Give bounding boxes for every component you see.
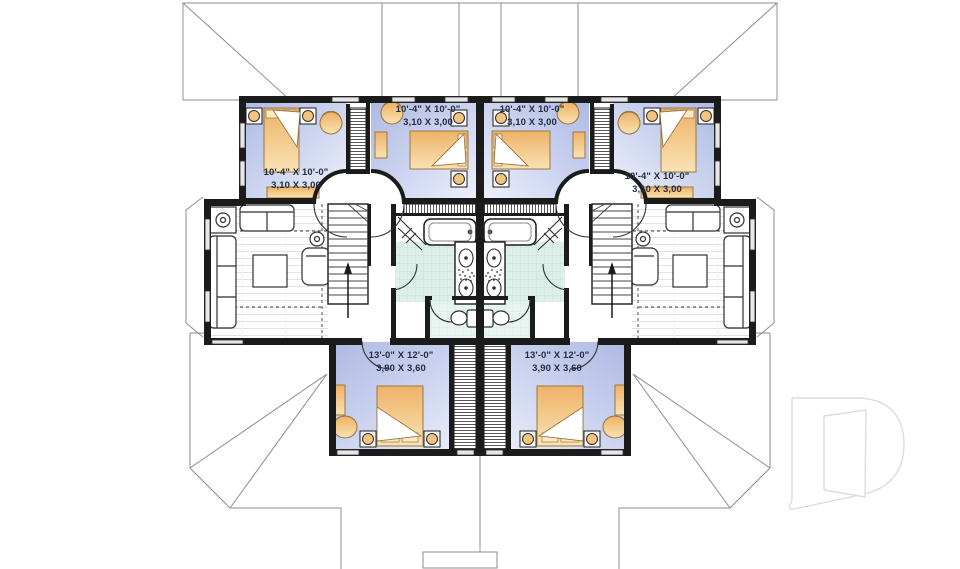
center-roof-details [423,456,497,568]
lamp [249,111,260,122]
tub-faucet [468,230,473,235]
window [212,340,243,344]
dimension-imperial: 10'-4" X 10'-0" [241,166,351,179]
window [337,450,359,455]
coffee-table [253,255,287,287]
lamp [427,434,438,445]
room-label-lower-left: 13'-0" X 12'-0" 3,90 X 3,60 [346,349,456,375]
window [392,97,415,102]
toilet-tank [467,310,477,327]
linen-closet [404,204,476,214]
duplex-right-unit [480,3,777,569]
room-label-upper-right-outer: 10'-4" X 10'-0" 3,10 X 3,00 [602,170,712,196]
dimension-metric: 3,10 X 3,00 [602,183,712,196]
dimension-metric: 3,90 X 3,60 [502,362,612,375]
room-label-lower-right: 13'-0" X 12'-0" 3,90 X 3,60 [502,349,612,375]
window [205,219,210,250]
lamp [454,174,465,185]
round-chair [320,112,342,134]
toilet-bowl [451,311,467,325]
lamp [303,111,314,122]
room-label-upper-left-inner: 10'-4" X 10'-0" 3,10 X 3,00 [373,103,483,129]
dimension-metric: 3,10 X 3,00 [477,116,587,129]
dresser [375,132,387,158]
room-label-upper-right-inner: 10'-4" X 10'-0" 3,10 X 3,00 [477,103,587,129]
floor-plan-svg [0,0,960,569]
window [457,450,474,455]
sofa [209,236,236,328]
dimension-imperial: 10'-4" X 10'-0" [477,103,587,116]
lamp [363,434,374,445]
closet [454,342,476,449]
floor-plan-canvas: 10'-4" X 10'-0" 3,10 X 3,00 10'-4" X 10'… [0,0,960,569]
closet [350,108,366,170]
staircase [328,204,368,318]
dimension-metric: 3,10 X 3,00 [241,179,351,192]
dimension-metric: 3,10 X 3,00 [373,116,483,129]
duplex-left-unit [183,3,480,569]
window [240,123,245,148]
armchair [302,248,330,285]
dimension-imperial: 10'-4" X 10'-0" [602,170,712,183]
window [445,97,468,102]
dimension-imperial: 10'-4" X 10'-0" [373,103,483,116]
dimension-metric: 3,90 X 3,60 [346,362,456,375]
dimension-imperial: 13'-0" X 12'-0" [502,349,612,362]
dimension-imperial: 13'-0" X 12'-0" [346,349,456,362]
window [332,97,359,102]
room-label-upper-left-outer: 10'-4" X 10'-0" 3,10 X 3,00 [241,166,351,192]
logo-d-watermark [789,398,904,509]
window [205,291,210,322]
